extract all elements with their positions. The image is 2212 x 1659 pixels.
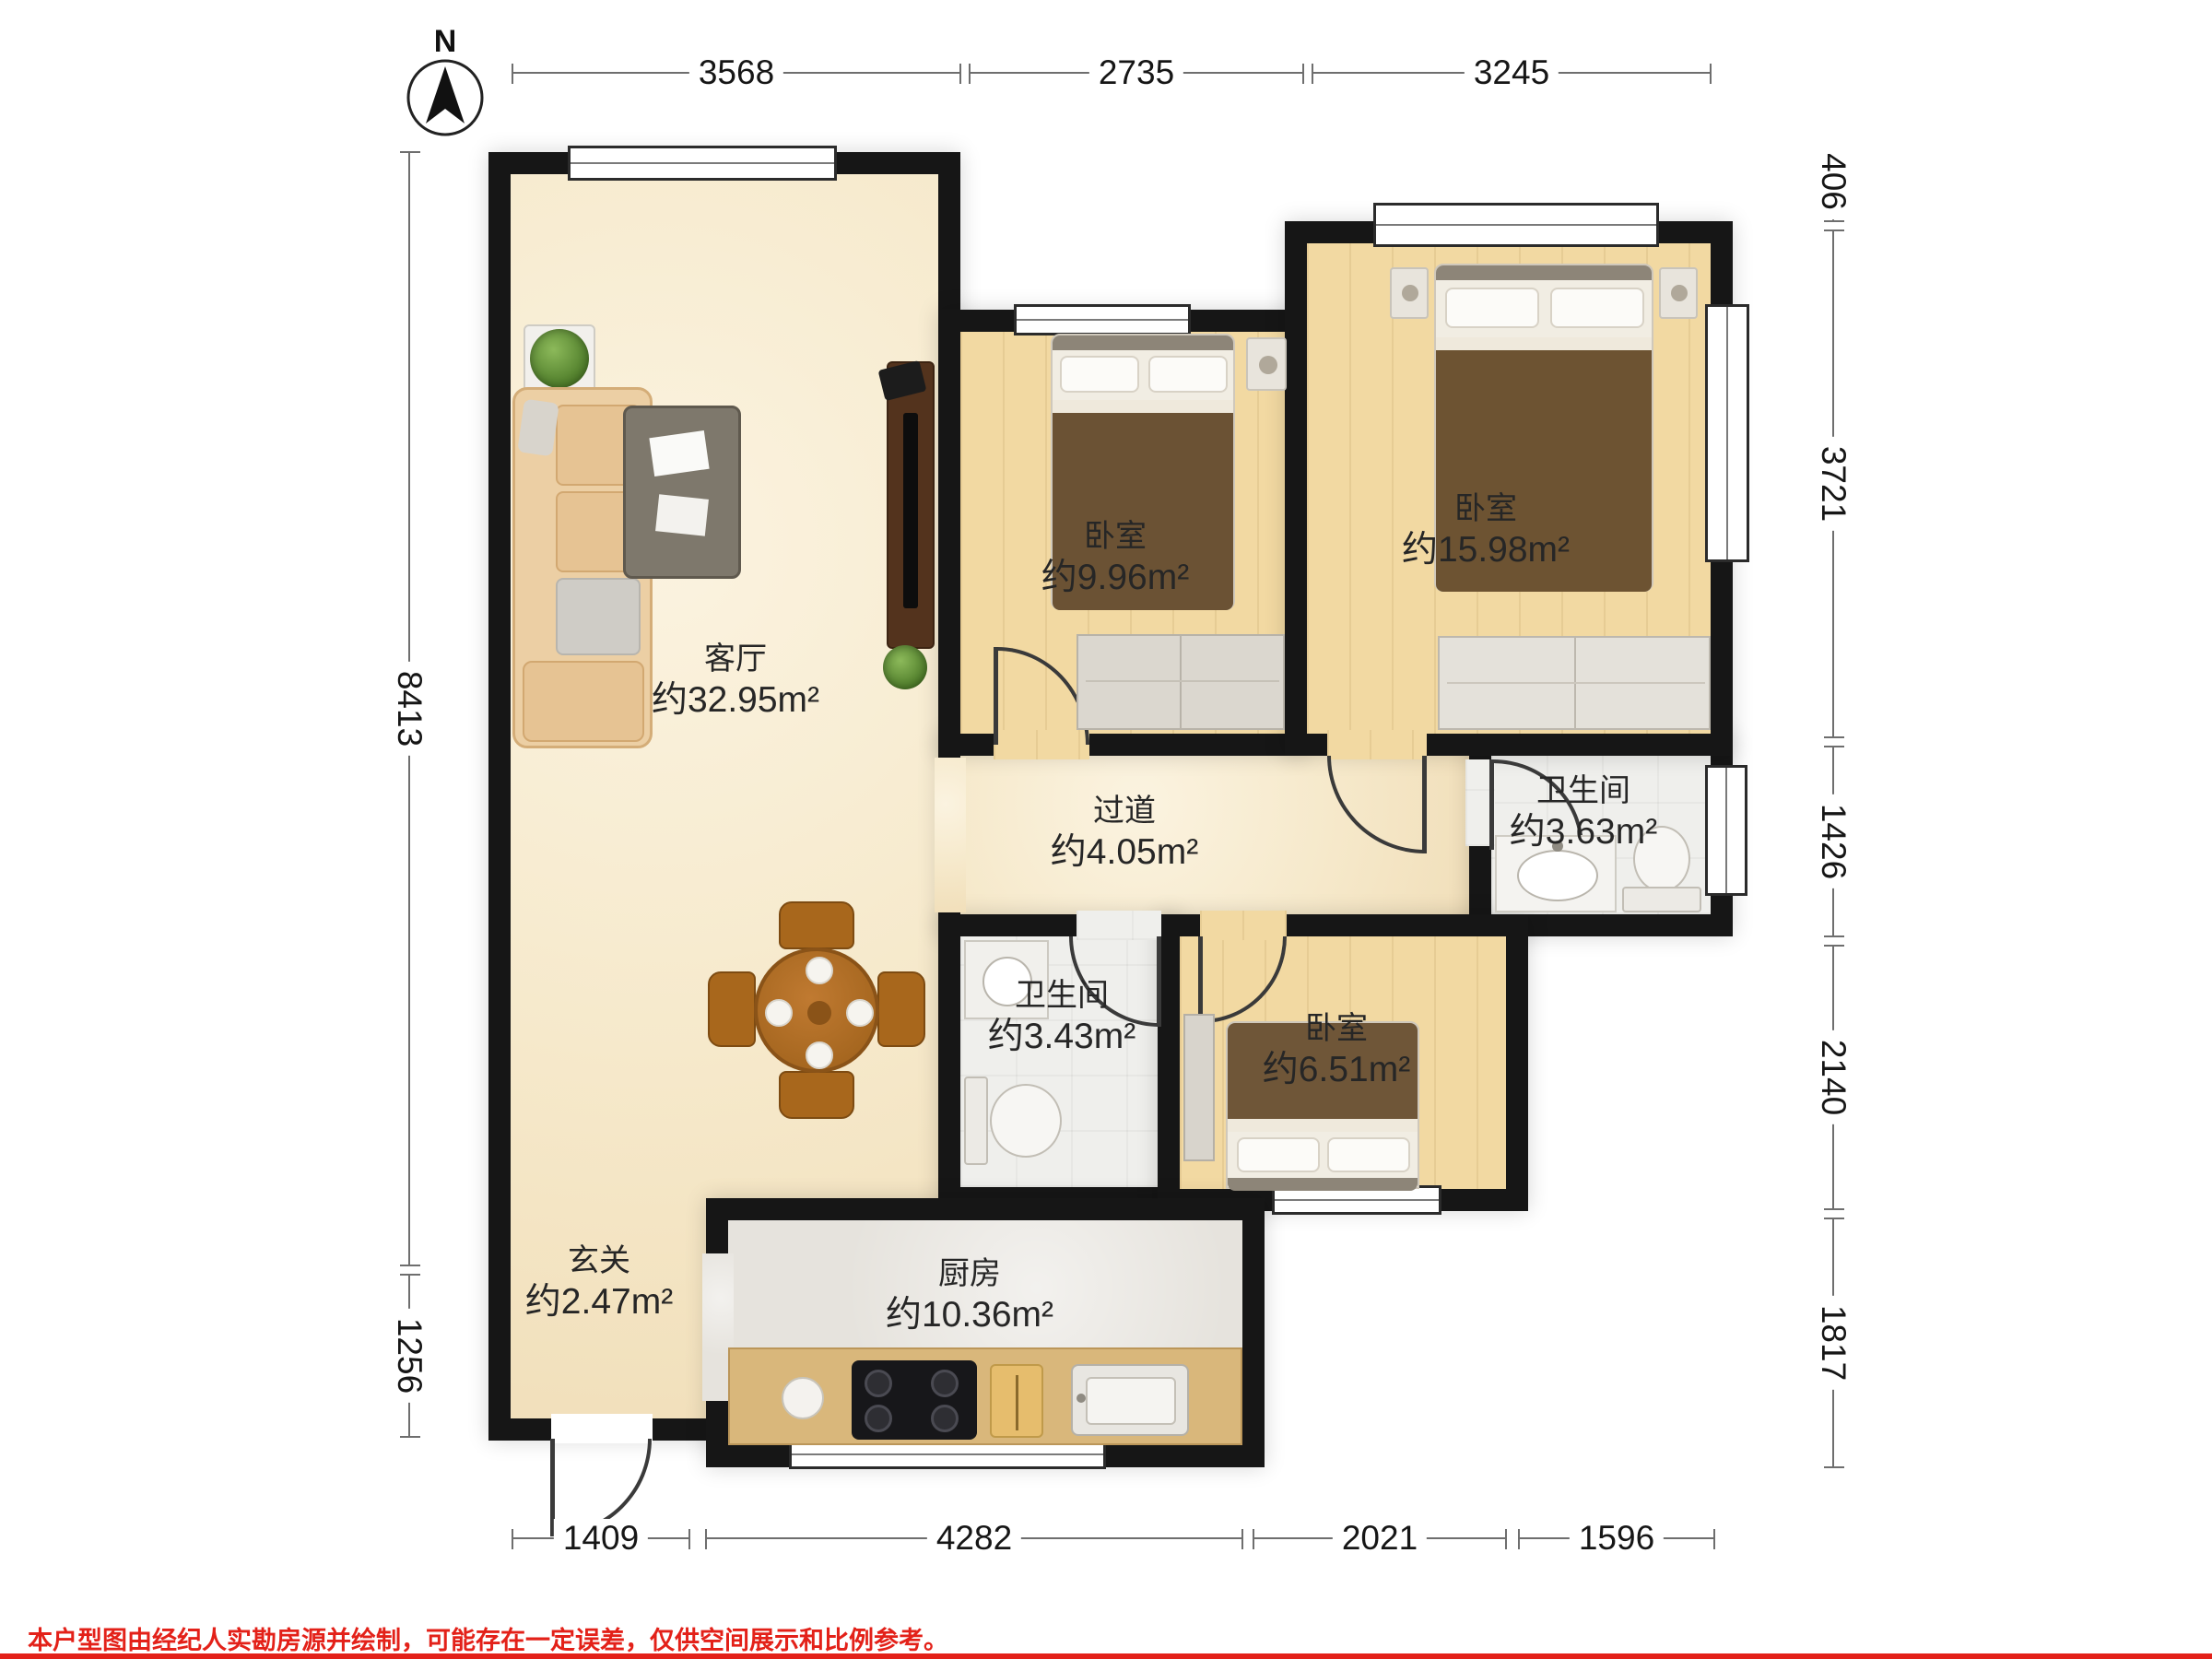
dim-value: 8413 [390,662,429,756]
plate [806,1041,833,1069]
sink-basin [1086,1377,1176,1425]
dining-table [754,947,879,1073]
dim-right-3721: 3721 [1832,230,1834,737]
plate [806,957,833,984]
room-label-bath-right: 卫生间 约3.63m² [1464,772,1703,854]
headboard [1228,1178,1418,1191]
room-name: 过道 [1005,793,1244,830]
wardrobe-small [1183,1014,1215,1161]
dim-value: 1596 [1570,1519,1664,1558]
dim-value: 3245 [1465,53,1559,92]
coffee-table [623,406,741,579]
nightstand [1246,337,1287,391]
dim-value: 2140 [1814,1030,1853,1124]
toilet-tank [1622,887,1701,912]
room-label-kitchen: 厨房 约10.36m² [850,1255,1089,1337]
room-label-bath-mid: 卫生间 约3.43m² [942,977,1182,1059]
pillow [1237,1137,1320,1172]
floorplan-canvas: 客厅 约32.95m² 卧室 约9.96m² 卧室 约15.98m² 卫生间 约… [0,0,2212,1659]
burner [865,1405,892,1432]
pillow [1148,356,1228,393]
dim-value: 3721 [1814,437,1853,531]
plant-small-icon [883,645,927,689]
north-label: N [434,24,457,59]
wardrobe-divider [1180,636,1182,728]
dim-value: 406 [1814,144,1853,219]
room-area: 约10.36m² [850,1293,1089,1337]
dining-chair [708,971,756,1047]
dim-value: 3568 [689,53,783,92]
dim-bottom-1596: 1596 [1519,1537,1714,1539]
room-name: 玄关 [479,1242,719,1280]
room-area: 约3.63m² [1464,810,1703,854]
knife [1016,1375,1018,1430]
paper [655,494,709,535]
kitchen-counter [728,1347,1242,1445]
dim-right-1817: 1817 [1832,1218,1834,1467]
room-name: 卧室 [995,518,1235,556]
wardrobe-rail [1447,682,1705,684]
toilet [964,1077,1065,1165]
lamp [1671,285,1688,301]
room-area: 约9.96m² [995,556,1235,600]
pillow [1445,288,1539,328]
kitchen-sink [1071,1364,1189,1436]
dim-value: 1426 [1814,794,1853,888]
room-label-entry: 玄关 约2.47m² [479,1242,719,1324]
room-label-hallway: 过道 约4.05m² [1005,793,1244,875]
sofa-pillow [517,399,559,457]
room-area: 约4.05m² [1005,830,1244,875]
north-arrow-icon: N [394,20,496,140]
plate [846,999,874,1027]
table-center-bowl [807,1001,831,1025]
opening-living-hallway [935,758,966,912]
lamp [1402,285,1418,301]
dining-chair [779,1071,854,1119]
wardrobe-rail [1086,680,1279,682]
room-name: 厨房 [850,1255,1089,1293]
dim-right-2140: 2140 [1832,946,1834,1209]
wardrobe-large [1438,636,1711,730]
kitchen-bowl [782,1377,824,1419]
paper [649,430,709,477]
dim-top-2735: 2735 [970,72,1303,74]
disclaimer-text: 本户型图由经纪人实勘房源并绘制，可能存在一定误差，仅供空间展示和比例参考。 [28,1620,948,1656]
window-living-top [568,146,837,181]
dim-right-406: 406 [1832,171,1834,221]
dim-value: 2021 [1333,1519,1427,1558]
dim-value: 1409 [554,1519,648,1558]
pillow [1550,288,1644,328]
burner [931,1405,959,1432]
sheet [1053,400,1233,413]
plate [765,999,793,1027]
dim-bottom-1409: 1409 [512,1537,689,1539]
burner [865,1370,892,1397]
window-bedroom-large-right [1705,304,1749,562]
nightstand [1390,267,1429,319]
window-bath-right [1705,765,1747,896]
dim-top-3245: 3245 [1312,72,1711,74]
burner [931,1370,959,1397]
window-bedroom-mid-top [1014,304,1191,335]
dining-chair [877,971,925,1047]
dim-value: 4282 [927,1519,1021,1558]
toilet-tank [964,1077,988,1165]
room-label-bedroom-small: 卧室 约6.51m² [1217,1010,1456,1092]
room-area: 约32.95m² [616,678,855,723]
faucet [1077,1394,1086,1403]
dim-bottom-2021: 2021 [1253,1537,1506,1539]
room-area: 约6.51m² [1217,1048,1456,1092]
room-label-bedroom-large: 卧室 约15.98m² [1366,490,1606,572]
pillow [1060,356,1139,393]
wardrobe-mid [1077,634,1285,730]
dim-value: 1817 [1814,1296,1853,1390]
dim-bottom-4282: 4282 [706,1537,1242,1539]
sheet [1436,337,1652,350]
nightstand [1659,267,1698,319]
tv [903,413,918,608]
headboard [1436,265,1652,280]
dim-right-1426: 1426 [1832,747,1834,936]
dim-top-3568: 3568 [512,72,960,74]
sink-basin [1517,850,1598,901]
sheet [1228,1119,1418,1132]
room-label-living: 客厅 约32.95m² [616,641,855,723]
window-bedroom-large-bay [1373,203,1659,247]
room-name: 客厅 [616,641,855,678]
room-label-bedroom-mid: 卧室 约9.96m² [995,518,1235,600]
stove [852,1360,977,1440]
room-name: 卫生间 [942,977,1182,1015]
dim-value: 1256 [390,1309,429,1403]
room-area: 约2.47m² [479,1280,719,1324]
dining-chair [779,901,854,949]
pillow [1327,1137,1410,1172]
room-name: 卫生间 [1464,772,1703,810]
room-name: 卧室 [1366,490,1606,528]
room-area: 约3.43m² [942,1015,1182,1059]
room-area: 约15.98m² [1366,528,1606,572]
dim-left-8413: 8413 [408,152,410,1265]
headboard [1053,335,1233,350]
dim-value: 2735 [1089,53,1183,92]
plant-icon [530,329,589,388]
room-name: 卧室 [1217,1010,1456,1048]
toilet-bowl [990,1084,1062,1158]
dim-left-1256: 1256 [408,1275,410,1437]
lamp [1259,356,1277,374]
cutting-board [990,1364,1043,1438]
footer-divider [0,1653,2212,1659]
